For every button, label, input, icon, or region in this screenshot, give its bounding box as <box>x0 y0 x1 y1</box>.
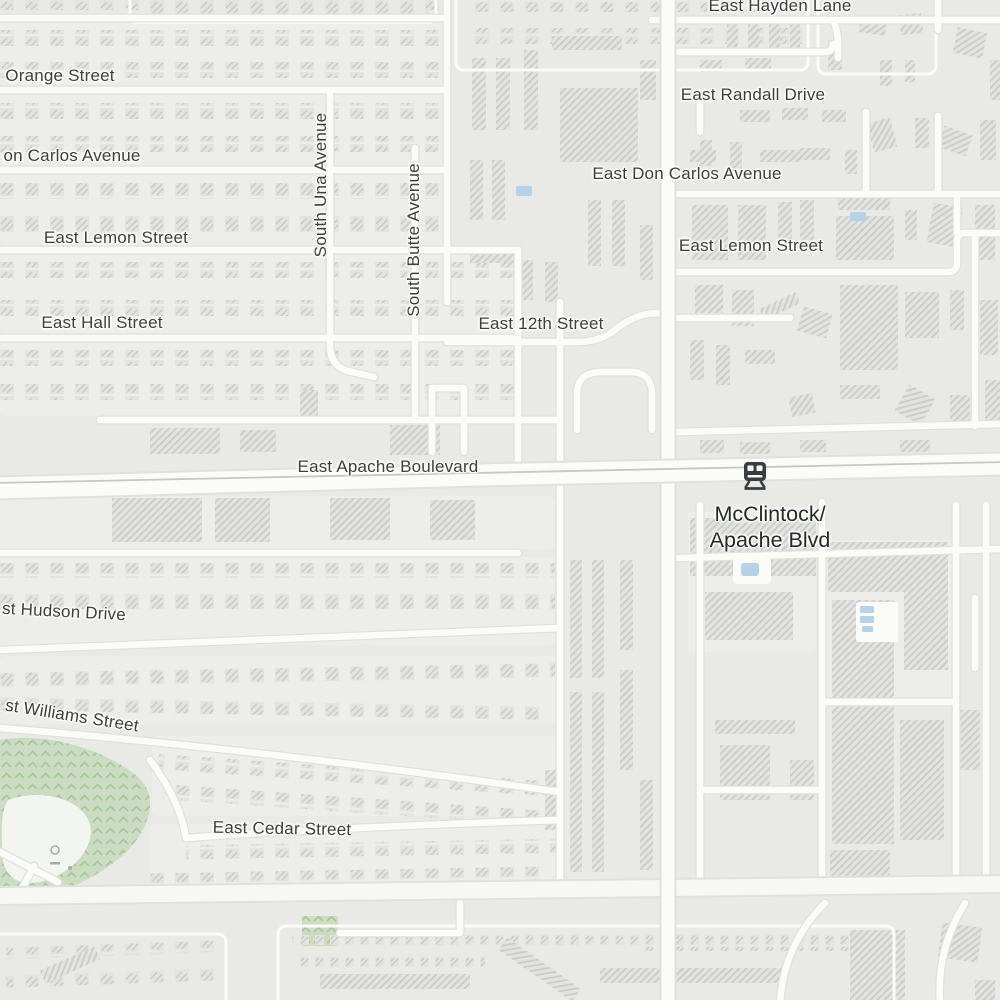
map-canvas[interactable]: East Hayden LaneOrange StreetEast Randal… <box>0 0 1000 1000</box>
map-tiles <box>0 0 1000 1000</box>
station-name-line1: McClintock/ <box>710 501 831 527</box>
station-name-line2: Apache Blvd <box>710 527 831 553</box>
station-label[interactable]: McClintock/ Apache Blvd <box>710 501 831 553</box>
